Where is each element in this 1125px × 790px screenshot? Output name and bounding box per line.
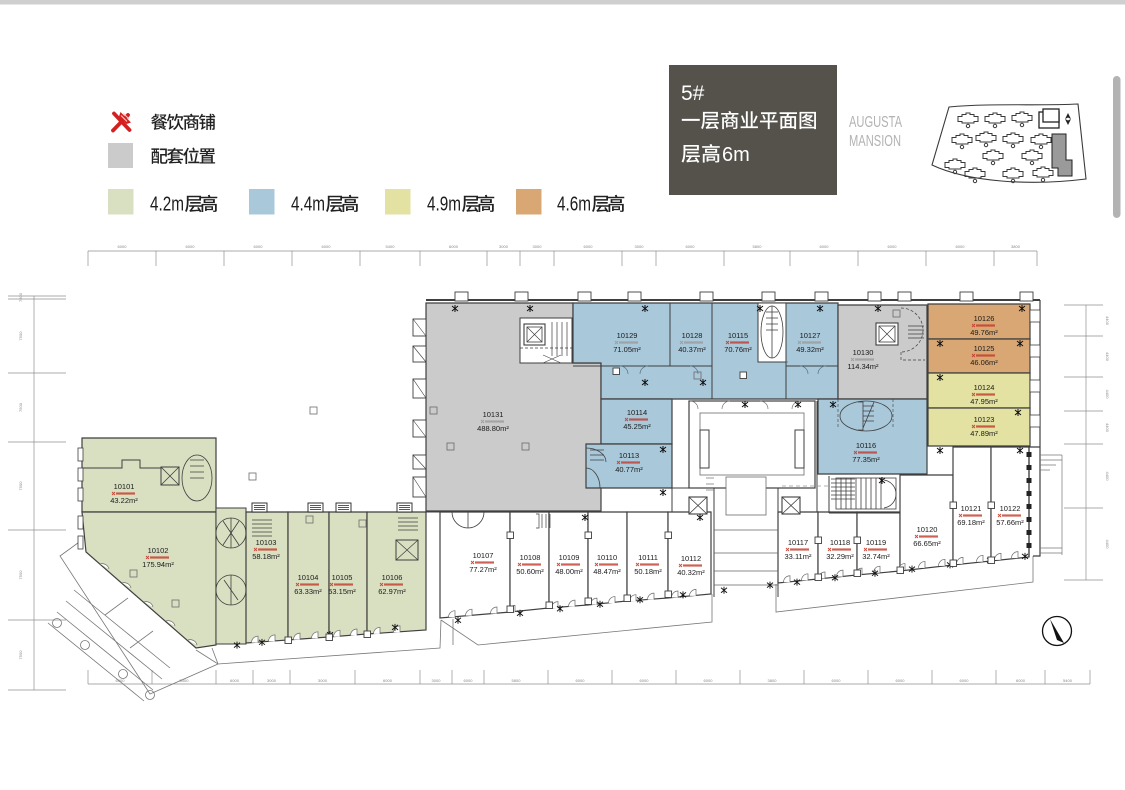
- svg-text:AUGUSTA: AUGUSTA: [849, 114, 902, 131]
- svg-text:5800: 5800: [753, 244, 763, 249]
- svg-text:71.05m²: 71.05m²: [613, 345, 641, 354]
- svg-text:10123: 10123: [974, 415, 995, 424]
- svg-text:5400: 5400: [1063, 678, 1073, 683]
- svg-text:50.18m²: 50.18m²: [634, 567, 662, 576]
- svg-text:10115: 10115: [728, 331, 748, 340]
- svg-text:62.97m²: 62.97m²: [378, 587, 406, 596]
- svg-text:4.4m: 4.4m: [291, 194, 325, 216]
- svg-text:10114: 10114: [627, 408, 647, 417]
- svg-text:6000: 6000: [464, 678, 474, 683]
- svg-text:5#: 5#: [681, 82, 705, 105]
- svg-text:10131: 10131: [483, 410, 504, 419]
- svg-text:49.76m²: 49.76m²: [970, 328, 998, 337]
- svg-text:3000: 3000: [432, 678, 442, 683]
- svg-text:33.11m²: 33.11m²: [785, 552, 812, 561]
- svg-text:7500: 7500: [18, 331, 23, 341]
- svg-text:10103: 10103: [256, 538, 277, 547]
- svg-text:10106: 10106: [382, 573, 403, 582]
- svg-text:3000: 3000: [533, 244, 543, 249]
- svg-text:69.18m²: 69.18m²: [957, 518, 985, 527]
- svg-text:77.35m²: 77.35m²: [852, 455, 880, 464]
- svg-text:53.15m²: 53.15m²: [328, 587, 356, 596]
- svg-text:7500: 7500: [18, 481, 23, 491]
- svg-text:10119: 10119: [866, 538, 886, 547]
- svg-text:6000: 6000: [820, 244, 830, 249]
- svg-text:6m: 6m: [722, 144, 750, 166]
- svg-text:47.89m²: 47.89m²: [970, 429, 998, 438]
- svg-text:48.00m²: 48.00m²: [555, 567, 583, 576]
- svg-text:6000: 6000: [686, 244, 696, 249]
- svg-text:47.95m²: 47.95m²: [970, 397, 998, 406]
- svg-text:4.9m: 4.9m: [427, 194, 461, 216]
- svg-text:7500: 7500: [18, 570, 23, 580]
- svg-text:40.32m²: 40.32m²: [677, 568, 705, 577]
- svg-text:4400: 4400: [1105, 423, 1110, 433]
- svg-text:40.77m²: 40.77m²: [615, 465, 643, 474]
- svg-text:10109: 10109: [559, 553, 580, 562]
- svg-text:6000: 6000: [1016, 678, 1026, 683]
- svg-text:10128: 10128: [682, 331, 703, 340]
- svg-text:10105: 10105: [332, 573, 353, 582]
- svg-text:4400: 4400: [1105, 352, 1110, 362]
- svg-text:6000: 6000: [322, 244, 332, 249]
- svg-text:10111: 10111: [638, 553, 658, 562]
- svg-text:6000: 6000: [640, 678, 650, 683]
- svg-text:6000: 6000: [576, 678, 586, 683]
- svg-text:66.65m²: 66.65m²: [913, 539, 941, 548]
- svg-text:4.2m: 4.2m: [150, 194, 184, 216]
- svg-text:4400: 4400: [1105, 316, 1110, 326]
- svg-text:10112: 10112: [681, 554, 701, 563]
- svg-text:10104: 10104: [298, 573, 319, 582]
- svg-text:7500: 7500: [18, 402, 23, 412]
- svg-text:6000: 6000: [888, 244, 898, 249]
- svg-text:4400: 4400: [1105, 472, 1110, 482]
- svg-text:10117: 10117: [788, 538, 808, 547]
- svg-text:10121: 10121: [961, 504, 982, 513]
- svg-text:10120: 10120: [917, 525, 938, 534]
- svg-text:48.47m²: 48.47m²: [593, 567, 621, 576]
- svg-text:6000: 6000: [254, 244, 264, 249]
- svg-text:10127: 10127: [800, 331, 821, 340]
- svg-text:10130: 10130: [853, 348, 874, 357]
- svg-text:32.29m²: 32.29m²: [826, 552, 854, 561]
- svg-text:MANSION: MANSION: [849, 133, 901, 150]
- svg-text:6000: 6000: [832, 678, 842, 683]
- svg-text:6000: 6000: [230, 678, 240, 683]
- svg-text:6000: 6000: [383, 678, 393, 683]
- svg-text:10102: 10102: [148, 546, 169, 555]
- svg-text:3000: 3000: [635, 244, 645, 249]
- svg-text:70.76m²: 70.76m²: [724, 345, 752, 354]
- svg-text:10107: 10107: [473, 551, 494, 560]
- svg-text:10110: 10110: [597, 553, 617, 562]
- svg-text:6000: 6000: [584, 244, 594, 249]
- svg-text:4400: 4400: [1105, 390, 1110, 400]
- svg-text:77.27m²: 77.27m²: [469, 565, 497, 574]
- svg-text:6000: 6000: [449, 244, 459, 249]
- svg-text:6000: 6000: [118, 244, 128, 249]
- svg-text:10126: 10126: [974, 314, 995, 323]
- svg-text:45.25m²: 45.25m²: [623, 422, 651, 431]
- svg-text:3800: 3800: [768, 678, 778, 683]
- svg-text:49.32m²: 49.32m²: [796, 345, 824, 354]
- svg-text:46.06m²: 46.06m²: [970, 358, 998, 367]
- svg-text:10118: 10118: [830, 538, 850, 547]
- svg-text:488.80m²: 488.80m²: [477, 424, 509, 433]
- svg-text:4400: 4400: [1105, 540, 1110, 550]
- svg-text:40.37m²: 40.37m²: [678, 345, 706, 354]
- svg-text:7500: 7500: [18, 292, 23, 302]
- svg-text:50.60m²: 50.60m²: [516, 567, 544, 576]
- svg-text:10108: 10108: [520, 553, 541, 562]
- svg-text:5400: 5400: [386, 244, 396, 249]
- svg-text:63.33m²: 63.33m²: [294, 587, 322, 596]
- svg-text:6000: 6000: [704, 678, 714, 683]
- svg-text:10101: 10101: [114, 482, 135, 491]
- svg-text:57.66m²: 57.66m²: [996, 518, 1024, 527]
- svg-text:43.22m²: 43.22m²: [110, 496, 138, 505]
- svg-text:10124: 10124: [974, 383, 995, 392]
- svg-text:3800: 3800: [1011, 244, 1021, 249]
- svg-text:3000: 3000: [318, 678, 328, 683]
- svg-text:6000: 6000: [960, 678, 970, 683]
- svg-text:7500: 7500: [18, 650, 23, 660]
- svg-text:10113: 10113: [619, 451, 639, 460]
- svg-text:175.94m²: 175.94m²: [142, 560, 174, 569]
- svg-text:5800: 5800: [512, 678, 522, 683]
- svg-text:10125: 10125: [974, 344, 995, 353]
- svg-text:10122: 10122: [1000, 504, 1021, 513]
- svg-text:10116: 10116: [856, 441, 876, 450]
- svg-text:3000: 3000: [267, 678, 277, 683]
- svg-text:6000: 6000: [956, 244, 966, 249]
- svg-text:3000: 3000: [499, 244, 509, 249]
- svg-text:6000: 6000: [896, 678, 906, 683]
- svg-text:58.18m²: 58.18m²: [252, 552, 280, 561]
- svg-text:114.34m²: 114.34m²: [847, 362, 879, 371]
- svg-text:10129: 10129: [617, 331, 638, 340]
- svg-text:32.74m²: 32.74m²: [862, 552, 890, 561]
- svg-text:6000: 6000: [186, 244, 196, 249]
- svg-text:4.6m: 4.6m: [557, 194, 591, 216]
